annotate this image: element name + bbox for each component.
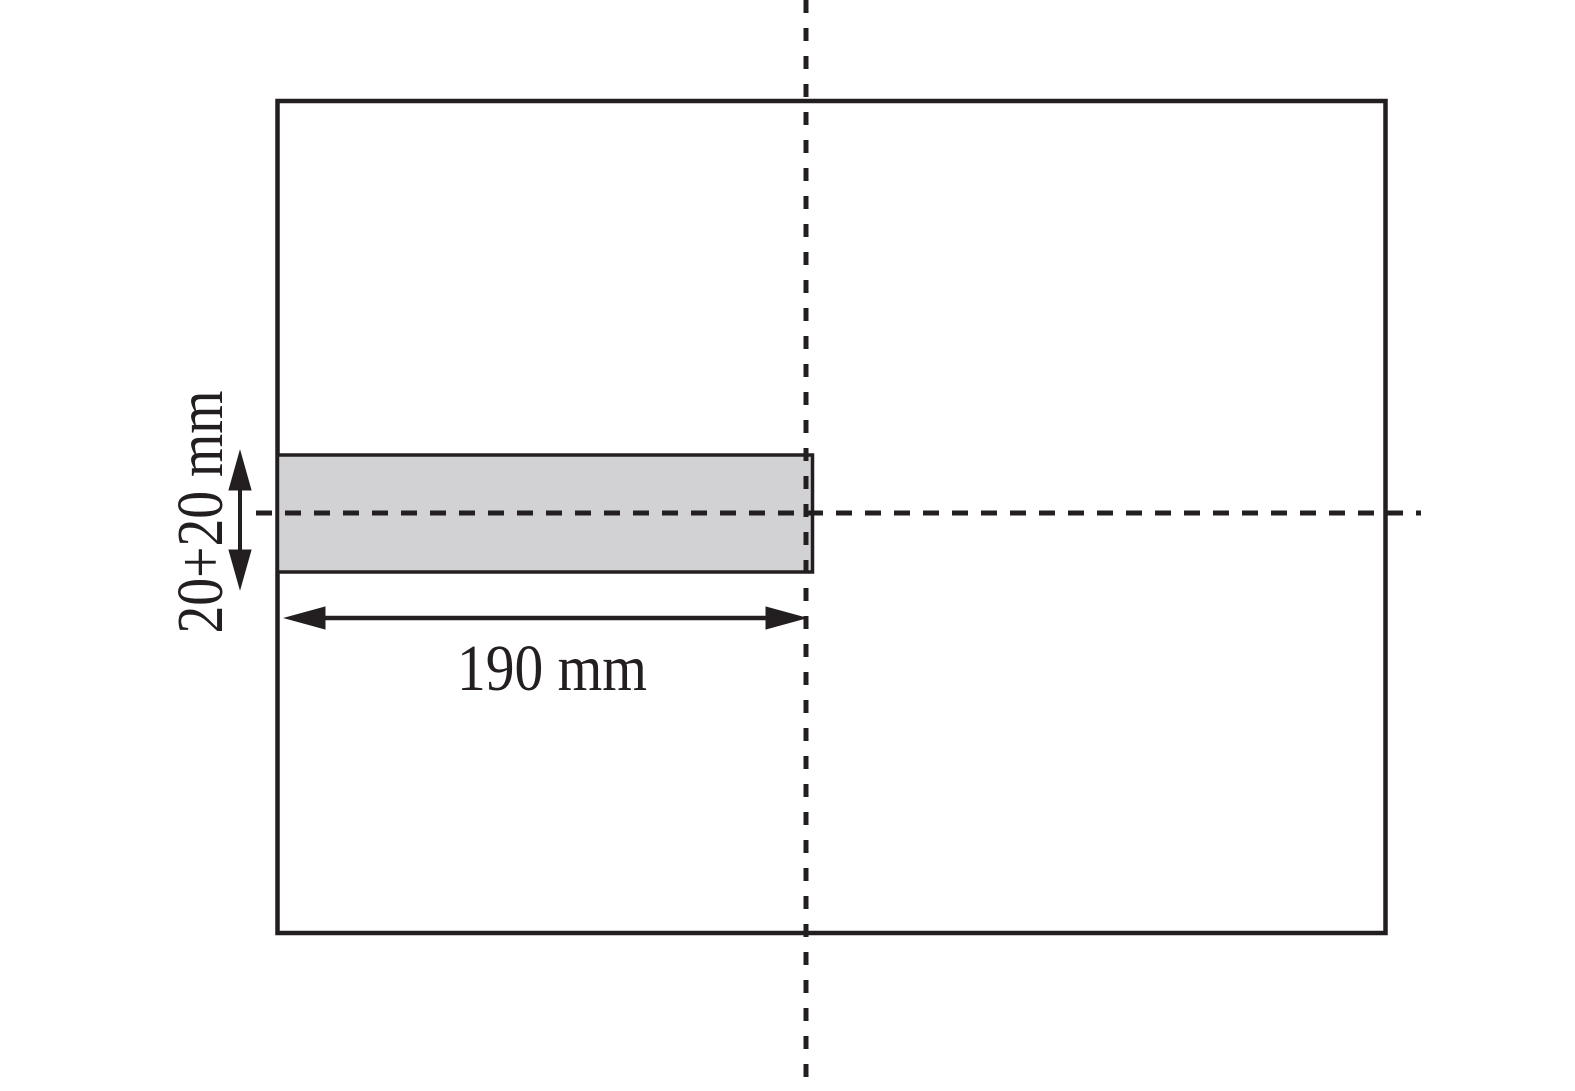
plate-diagram: 20+20 mm 190 mm — [0, 0, 1575, 1091]
width-dimension-arrow — [285, 607, 806, 629]
figure-canvas: 20+20 mm 190 mm — [0, 0, 1575, 1091]
height-dimension-label: 20+20 mm — [164, 391, 237, 634]
arrowhead-right-icon — [766, 607, 806, 629]
arrowhead-left-icon — [285, 607, 325, 629]
width-dimension-label: 190 mm — [457, 632, 647, 705]
